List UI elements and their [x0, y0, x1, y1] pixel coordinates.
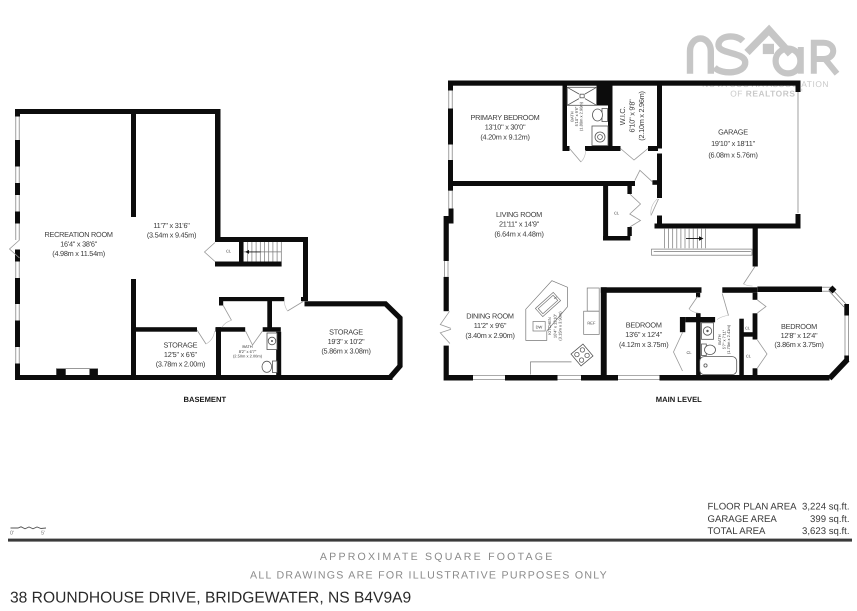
svg-text:(4.20m x 9.12m): (4.20m x 9.12m) — [480, 132, 529, 141]
svg-text:CL: CL — [614, 211, 620, 216]
svg-text:CL: CL — [686, 350, 692, 355]
svg-text:(3.40m x 2.90m): (3.40m x 2.90m) — [465, 331, 514, 340]
svg-text:19'10" x 18'11": 19'10" x 18'11" — [711, 139, 756, 148]
svg-text:BEDROOM: BEDROOM — [781, 322, 817, 331]
svg-text:BEDROOM: BEDROOM — [626, 321, 662, 330]
svg-text:3,623 sq.ft.: 3,623 sq.ft. — [802, 526, 849, 537]
svg-text:(5.86m x 3.08m): (5.86m x 3.08m) — [321, 347, 370, 356]
svg-text:11'2" x 9'6": 11'2" x 9'6" — [474, 321, 507, 330]
svg-text:19'3" x 10'2": 19'3" x 10'2" — [328, 337, 365, 346]
svg-text:TOTAL AREA: TOTAL AREA — [708, 526, 767, 537]
svg-text:16'4" x 38'6": 16'4" x 38'6" — [60, 240, 97, 249]
svg-text:(4.98m x 11.54m): (4.98m x 11.54m) — [52, 249, 105, 258]
svg-text:REF: REF — [587, 321, 596, 326]
svg-text:MAIN LEVEL: MAIN LEVEL — [656, 395, 702, 404]
svg-text:STORAGE: STORAGE — [163, 341, 197, 350]
svg-text:RECREATION ROOM: RECREATION ROOM — [44, 230, 112, 239]
svg-text:(3.54m x 9.45m): (3.54m x 9.45m) — [147, 231, 196, 240]
svg-text:CL: CL — [745, 326, 751, 331]
svg-text:STORAGE: STORAGE — [329, 328, 363, 337]
svg-text:APPROXIMATE SQUARE FOOTAGE: APPROXIMATE SQUARE FOOTAGE — [320, 551, 555, 563]
svg-text:(6.08m x 5.76m): (6.08m x 5.76m) — [708, 151, 757, 160]
svg-text:21'11" x 14'9": 21'11" x 14'9" — [499, 220, 540, 229]
svg-text:5': 5' — [41, 531, 45, 537]
svg-text:38 ROUNDHOUSE DRIVE, BRIDGEWAT: 38 ROUNDHOUSE DRIVE, BRIDGEWATER, NS B4V… — [10, 590, 411, 607]
svg-text:13'10" x 30'0": 13'10" x 30'0" — [485, 123, 526, 132]
svg-text:(2.50m x 2.00m): (2.50m x 2.00m) — [233, 354, 263, 359]
svg-text:(4.12m x 3.75m): (4.12m x 3.75m) — [619, 340, 668, 349]
svg-text:CL: CL — [746, 354, 752, 359]
svg-text:(3.86m x 3.75m): (3.86m x 3.75m) — [774, 340, 823, 349]
svg-text:DW: DW — [536, 325, 543, 330]
svg-text:DINING ROOM: DINING ROOM — [466, 312, 514, 321]
svg-text:399 sq.ft.: 399 sq.ft. — [810, 514, 849, 525]
svg-text:FLOOR PLAN AREA: FLOOR PLAN AREA — [708, 502, 798, 513]
svg-text:CL: CL — [226, 248, 232, 253]
svg-text:(3.78m x 2.00m): (3.78m x 2.00m) — [156, 360, 205, 369]
svg-text:LIVING ROOM: LIVING ROOM — [496, 210, 542, 219]
svg-text:12'8" x 12'4": 12'8" x 12'4" — [781, 331, 818, 340]
svg-text:BASEMENT: BASEMENT — [183, 395, 226, 404]
svg-text:OF REALTORS: OF REALTORS — [730, 88, 795, 98]
svg-text:11'7" x 31'6": 11'7" x 31'6" — [153, 221, 190, 230]
svg-text:GARAGE AREA: GARAGE AREA — [708, 514, 778, 525]
svg-text:3,224 sq.ft.: 3,224 sq.ft. — [802, 502, 849, 513]
svg-text:PRIMARY BEDROOM: PRIMARY BEDROOM — [471, 113, 540, 122]
svg-text:12'5" x 6'6": 12'5" x 6'6" — [164, 350, 198, 359]
svg-text:0': 0' — [10, 531, 14, 537]
svg-text:ALL DRAWINGS ARE FOR ILLUSTRAT: ALL DRAWINGS ARE FOR ILLUSTRATIVE PURPOS… — [250, 569, 608, 581]
svg-text:GARAGE: GARAGE — [718, 128, 748, 137]
svg-text:(6.64m x 4.48m): (6.64m x 4.48m) — [494, 229, 543, 238]
svg-text:13'6" x 12'4": 13'6" x 12'4" — [625, 330, 662, 339]
